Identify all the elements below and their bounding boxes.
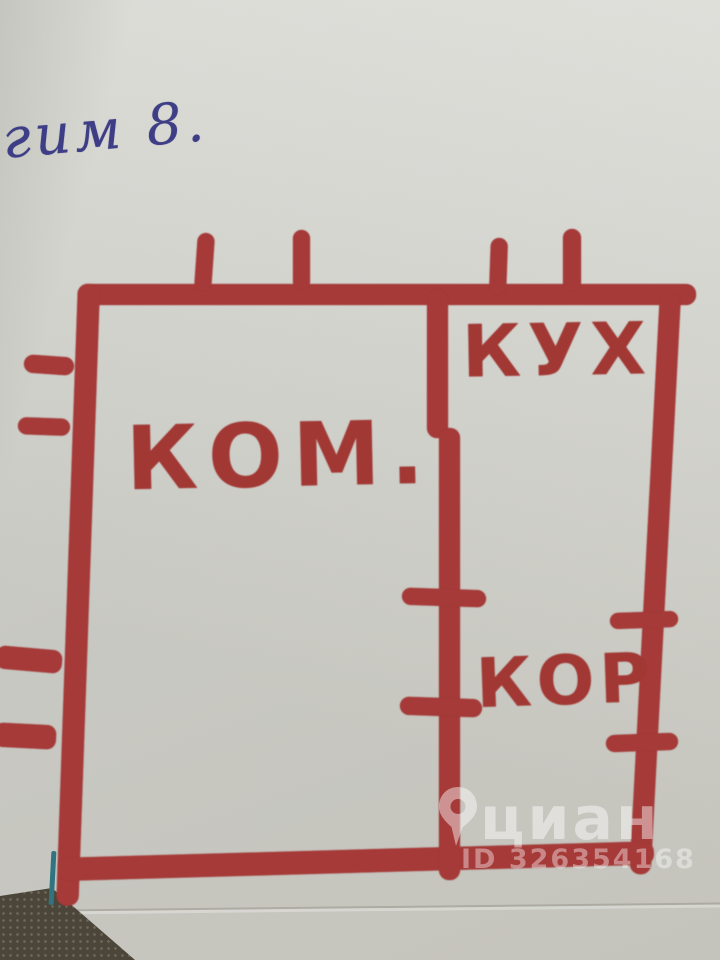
door-tick-right-lower xyxy=(606,733,679,753)
window-tick-top-2 xyxy=(293,230,310,290)
window-tick-left-1 xyxy=(23,354,74,375)
photo-of-floor-plan-sketch: гим 8. КОМ. КУХ КОР циан ID xyxy=(0,0,720,960)
cian-pin-icon xyxy=(437,786,479,850)
door-tick-internal-upper xyxy=(402,588,487,608)
wall-left xyxy=(56,284,100,906)
door-tick-internal-lower xyxy=(400,697,483,718)
door-tick-left-2 xyxy=(0,722,57,749)
door-tick-left-1 xyxy=(0,645,63,674)
door-tick-right-upper xyxy=(610,611,679,629)
wall-top xyxy=(78,284,696,305)
window-tick-top-3 xyxy=(489,238,508,295)
room-label-kuh: КУХ xyxy=(461,312,653,387)
room-label-kor: КОР xyxy=(475,645,655,719)
room-label-kom: КОМ. xyxy=(125,409,435,503)
window-tick-left-2 xyxy=(18,417,71,436)
watermark-id: ID 326354168 xyxy=(461,846,696,873)
window-tick-top-4 xyxy=(563,229,581,291)
watermark-brand: циан xyxy=(480,789,660,849)
window-tick-top-1 xyxy=(194,232,215,291)
